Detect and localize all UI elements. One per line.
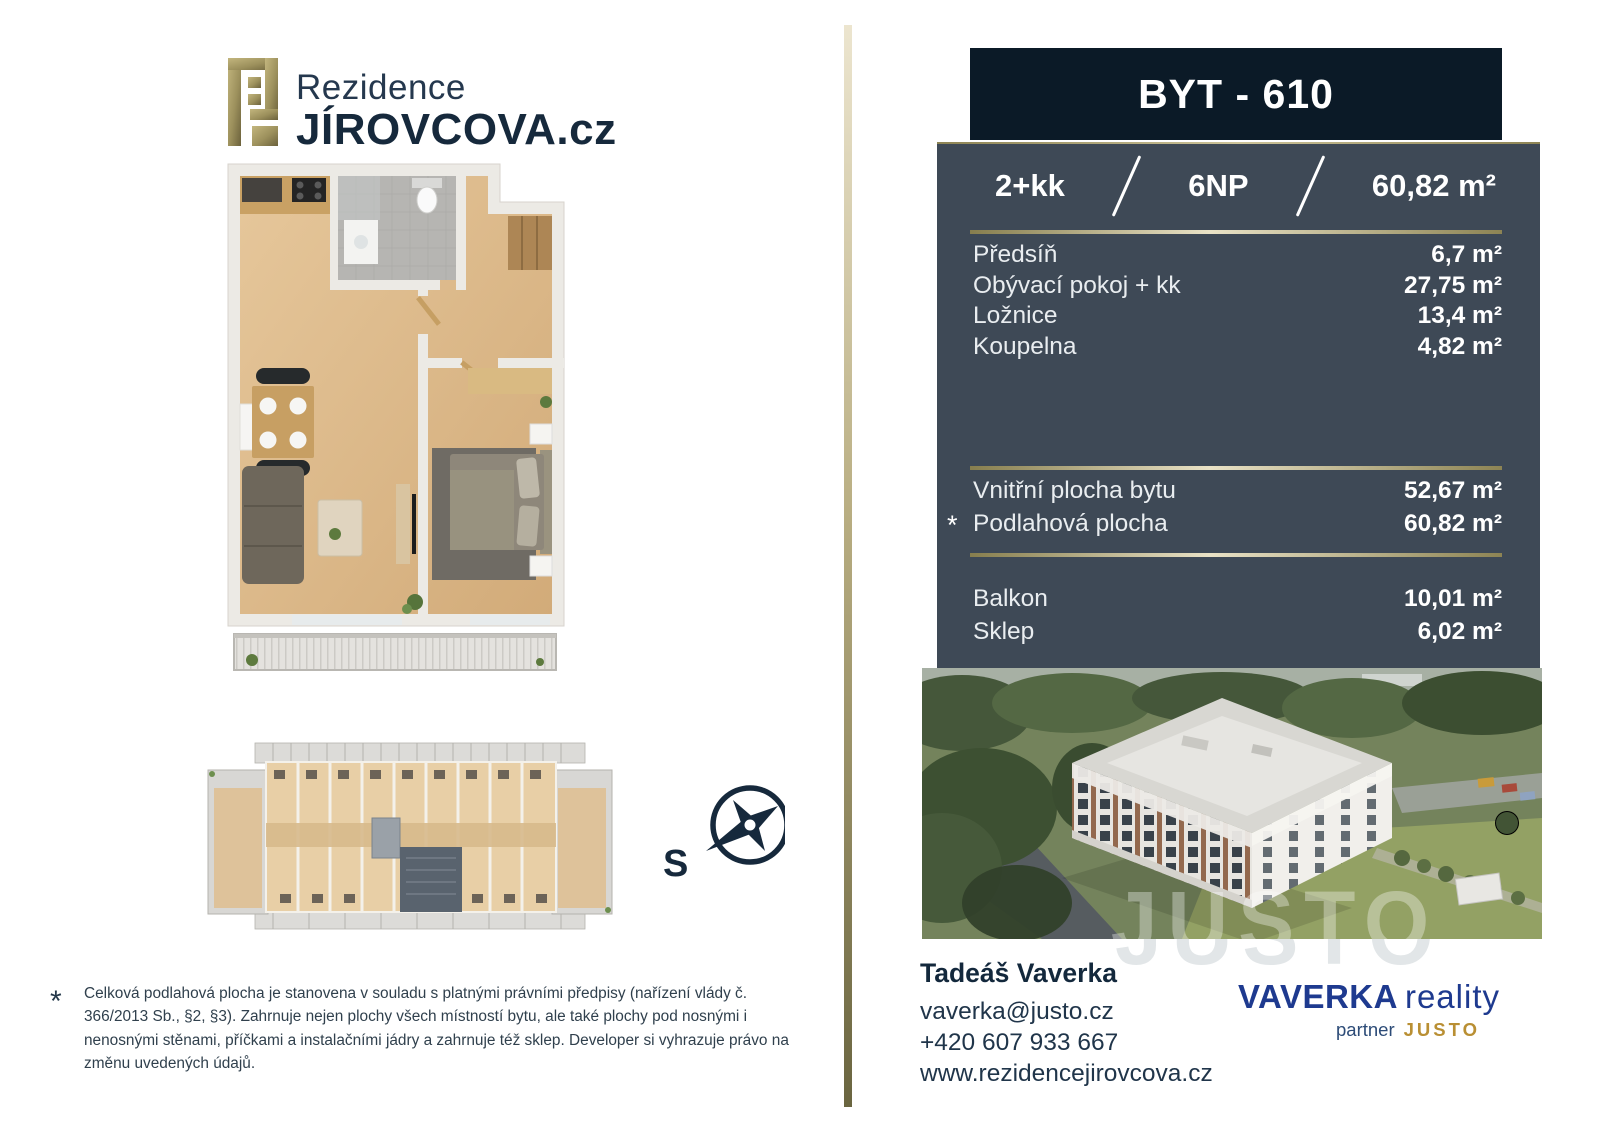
apartment-floor-plan <box>222 162 570 674</box>
room-area: 4,82 m² <box>1418 333 1502 361</box>
extra-label: Sklep <box>973 618 1034 646</box>
room-label: Obývací pokoj + kk <box>973 272 1181 300</box>
building-floor-plan <box>200 718 620 933</box>
justo-watermark: JUSTO <box>1111 874 1440 939</box>
agency-wordmark: VAVERKAreality <box>1238 978 1538 1016</box>
agency-partner-label: partner <box>1336 1019 1395 1040</box>
building-aerial-photo: JUSTO <box>922 668 1542 939</box>
room-label: Ložnice <box>973 302 1057 330</box>
unit-layout: 2+kk <box>995 168 1065 204</box>
flyer-page: Rezidence JÍROVCOVA.cz <box>0 0 1600 1131</box>
asterisk-marker: * <box>947 510 958 541</box>
agency-partner-row: partnerJUSTO <box>1238 1019 1538 1041</box>
room-label: Předsíň <box>973 241 1057 269</box>
extras-list: Balkon 10,01 m² Sklep 6,02 m² <box>973 582 1502 649</box>
compass-south-label: S <box>663 843 688 885</box>
contact-email[interactable]: vaverka@justo.cz <box>920 996 1260 1027</box>
extra-label: Balkon <box>973 585 1048 613</box>
gold-line <box>970 553 1502 557</box>
total-label: Vnitřní plocha bytu <box>973 477 1176 505</box>
room-row: Koupelna 4,82 m² <box>973 332 1502 363</box>
unit-title-bar: BYT - 610 <box>970 48 1502 140</box>
brand-line1: Rezidence <box>296 68 617 108</box>
agency-logo: VAVERKAreality partnerJUSTO <box>1238 978 1538 1041</box>
footnote: * Celková podlahová plocha je stanovena … <box>50 982 812 1076</box>
total-row: Vnitřní plocha bytu 52,67 m² <box>973 474 1502 508</box>
total-area: 52,67 m² <box>1404 477 1502 505</box>
agency-suffix: reality <box>1405 978 1500 1015</box>
contact-phone[interactable]: +420 607 933 667 <box>920 1027 1260 1058</box>
gold-line <box>970 466 1502 470</box>
extra-row: Sklep 6,02 m² <box>973 616 1502 650</box>
slash-divider-icon <box>1295 155 1325 217</box>
compass-icon: S <box>655 770 785 885</box>
contact-block: Tadeáš Vaverka vaverka@justo.cz +420 607… <box>920 958 1260 1089</box>
room-area: 13,4 m² <box>1418 302 1502 330</box>
room-label: Koupelna <box>973 333 1077 361</box>
slash-divider-icon <box>1112 155 1142 217</box>
room-list: Předsíň 6,7 m² Obývací pokoj + kk 27,75 … <box>973 240 1502 362</box>
gold-line <box>970 230 1502 234</box>
brand-wordmark: Rezidence JÍROVCOVA.cz <box>296 68 617 152</box>
total-row: * Podlahová plocha 60,82 m² <box>973 508 1502 542</box>
agency-name: VAVERKA <box>1238 978 1398 1015</box>
unit-area: 60,82 m² <box>1372 168 1496 204</box>
agency-partner-name: JUSTO <box>1404 1019 1480 1040</box>
extra-area: 6,02 m² <box>1418 618 1502 646</box>
room-row: Obývací pokoj + kk 27,75 m² <box>973 271 1502 302</box>
unit-spec-row: 2+kk 6NP 60,82 m² <box>937 142 1540 230</box>
room-row: Ložnice 13,4 m² <box>973 301 1502 332</box>
brand-line2: JÍROVCOVA.cz <box>296 108 617 152</box>
room-area: 27,75 m² <box>1404 272 1502 300</box>
room-area: 6,7 m² <box>1431 241 1502 269</box>
contact-name: Tadeáš Vaverka <box>920 958 1260 989</box>
extra-area: 10,01 m² <box>1404 585 1502 613</box>
extra-row: Balkon 10,01 m² <box>973 582 1502 616</box>
totals-list: Vnitřní plocha bytu 52,67 m² * Podlahová… <box>973 474 1502 541</box>
unit-title: BYT - 610 <box>1138 71 1334 118</box>
footnote-text: Celková podlahová plocha je stanovena v … <box>84 982 800 1076</box>
footnote-asterisk: * <box>50 985 62 1019</box>
total-label: Podlahová plocha <box>973 510 1168 538</box>
room-row: Předsíň 6,7 m² <box>973 240 1502 271</box>
gold-divider <box>844 25 852 1107</box>
contact-website[interactable]: www.rezidencejirovcova.cz <box>920 1058 1260 1089</box>
unit-info-panel: 2+kk 6NP 60,82 m² Předsíň 6,7 m² Obývací… <box>937 142 1540 668</box>
building-logo-icon <box>228 50 290 148</box>
total-area: 60,82 m² <box>1404 510 1502 538</box>
unit-floor: 6NP <box>1188 168 1248 204</box>
